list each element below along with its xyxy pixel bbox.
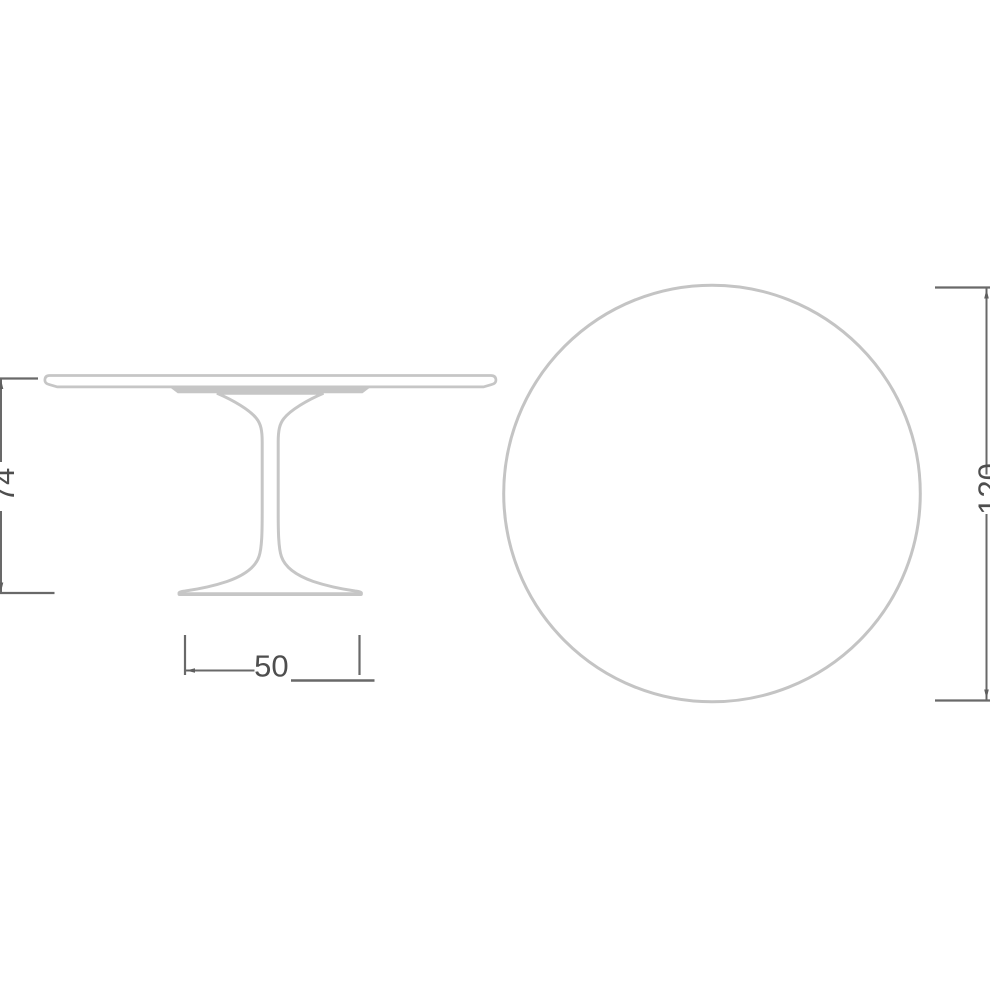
svg-text:50: 50 xyxy=(254,648,288,683)
svg-text:120: 120 xyxy=(972,463,990,515)
svg-text:74: 74 xyxy=(0,468,21,502)
